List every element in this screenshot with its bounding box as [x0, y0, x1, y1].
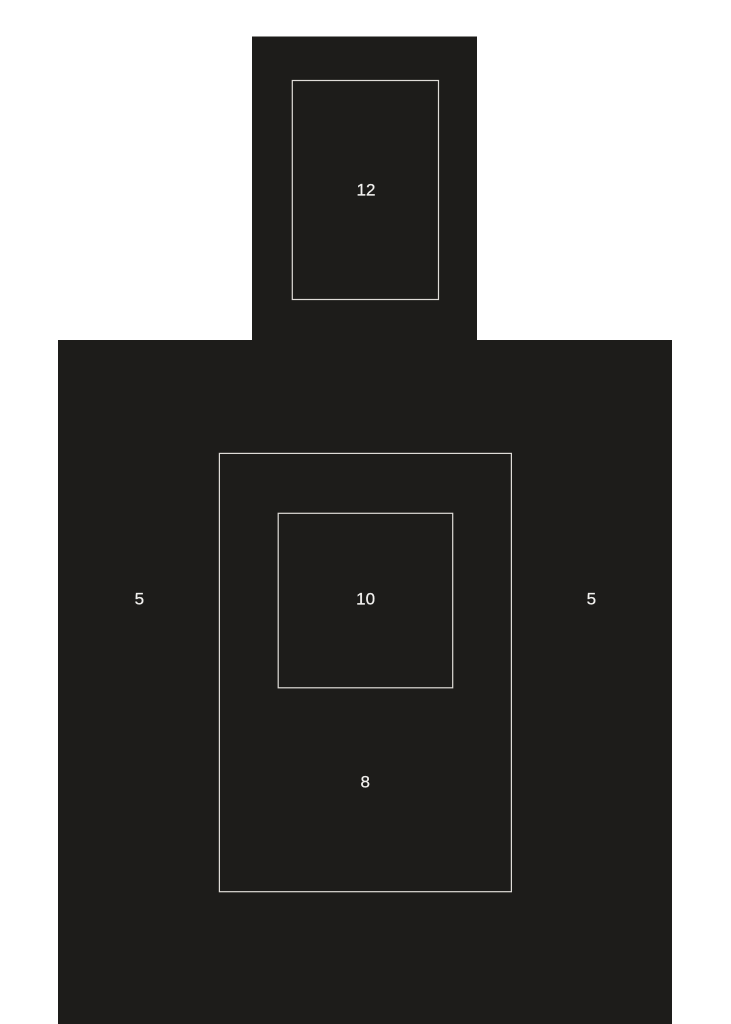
svg-text:10: 10: [356, 590, 375, 609]
svg-text:12: 12: [357, 181, 376, 200]
svg-text:5: 5: [587, 590, 596, 609]
svg-text:5: 5: [135, 590, 144, 609]
svg-text:8: 8: [360, 773, 369, 792]
